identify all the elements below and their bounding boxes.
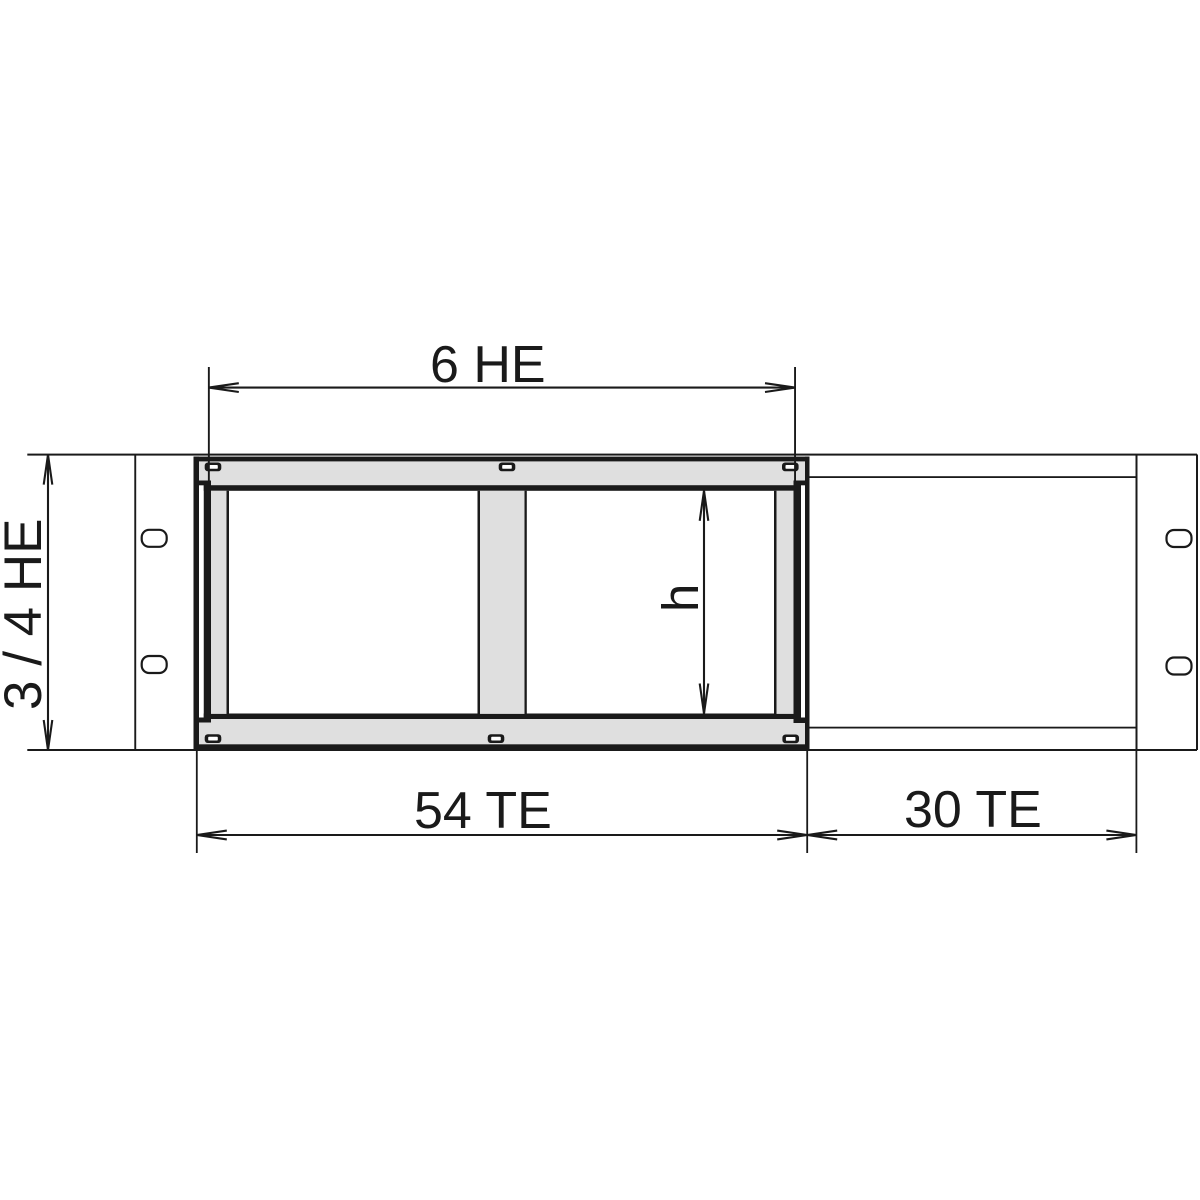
- svg-text:54 TE: 54 TE: [414, 782, 552, 840]
- svg-text:3 / 4 HE: 3 / 4 HE: [0, 519, 53, 710]
- svg-text:6 HE: 6 HE: [430, 336, 546, 394]
- svg-text:h: h: [652, 584, 709, 612]
- svg-text:30 TE: 30 TE: [904, 781, 1042, 839]
